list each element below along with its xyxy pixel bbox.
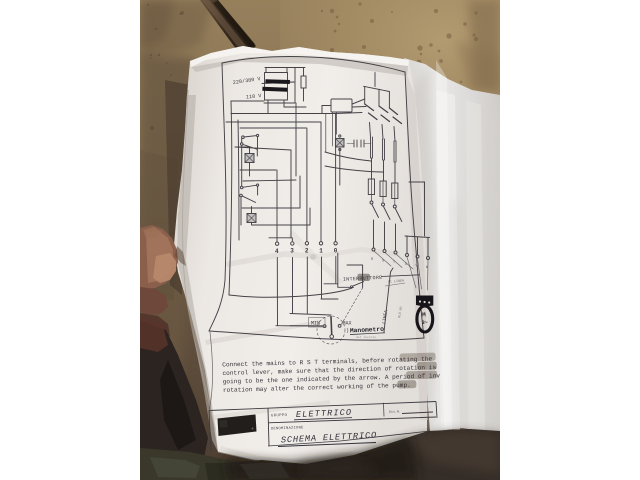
svg-text:2: 2 — [305, 247, 309, 254]
svg-text:3~: 3~ — [422, 320, 428, 326]
svg-text:MIN: MIN — [311, 321, 320, 327]
svg-text:GRUPPO: GRUPPO — [271, 414, 288, 419]
svg-text:3: 3 — [290, 248, 294, 255]
svg-text:T: T — [393, 261, 395, 265]
svg-text:0: 0 — [334, 247, 338, 254]
svg-text:U: U — [405, 263, 407, 267]
svg-text:Dis.N.: Dis.N. — [389, 409, 401, 413]
svg-text:R: R — [371, 258, 373, 262]
svg-text:4: 4 — [275, 248, 279, 255]
svg-text:S: S — [382, 260, 384, 264]
svg-text:MAX: MAX — [343, 321, 352, 327]
svg-text:1: 1 — [319, 247, 323, 254]
svg-text:): ) — [346, 328, 349, 334]
svg-text:del livello: del livello — [356, 335, 376, 339]
